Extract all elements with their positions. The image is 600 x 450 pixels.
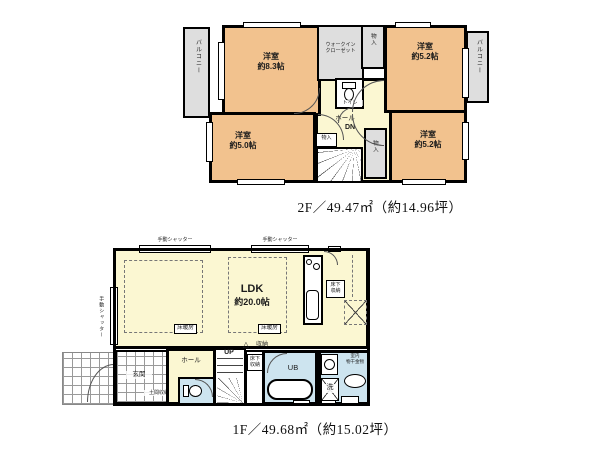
floor-2f-caption: 2F／49.47㎡（約14.96坪） — [280, 196, 480, 216]
floorplan-canvas: バルコニー バルコニー 洋室 約8.3帖 洋室 約5.0帖 洋室 約5.2帖 洋… — [0, 0, 600, 450]
bedroom-ne-name: 洋室 — [394, 42, 456, 52]
shutter-label-side: 手動シャッター — [98, 286, 104, 348]
window — [237, 179, 285, 185]
building-outline-1f — [113, 248, 370, 406]
balcony-left-label: バルコニー — [193, 39, 201, 74]
window — [218, 42, 225, 100]
closet-top-label: 物入 — [369, 33, 376, 46]
window — [395, 22, 431, 28]
wic-line2: クローゼット — [317, 48, 364, 54]
bedroom-sw-name: 洋室 — [210, 131, 276, 141]
bedroom-nw-size: 約8.3帖 — [238, 62, 304, 72]
bedroom-nw-label: 洋室 約8.3帖 — [238, 52, 304, 72]
closet-top: 物入 — [361, 25, 385, 69]
balcony-right: バルコニー — [466, 31, 489, 103]
bedroom-sw-size: 約5.0帖 — [210, 141, 276, 151]
shutter-label-top-right: 手動シャッター — [251, 237, 309, 243]
bedroom-se-name: 洋室 — [398, 130, 458, 140]
stairs-2f — [316, 147, 363, 183]
window — [206, 122, 213, 162]
bedroom-sw-label: 洋室 約5.0帖 — [210, 131, 276, 151]
floor-1f-caption: 1F／49.68㎡（約15.02坪） — [200, 418, 430, 438]
window — [402, 179, 446, 185]
window — [243, 22, 301, 28]
window — [462, 122, 469, 160]
bedroom-ne — [384, 25, 467, 113]
walk-in-closet-label: ウォークイン クローゼット — [317, 42, 364, 55]
bedroom-se-size: 約5.2帖 — [398, 140, 458, 150]
window — [462, 48, 469, 98]
shutter-label-top-left: 手動シャッター — [139, 237, 211, 243]
balcony-left: バルコニー — [183, 27, 210, 118]
bedroom-se-label: 洋室 約5.2帖 — [398, 130, 458, 150]
bedroom-ne-label: 洋室 約5.2帖 — [394, 42, 456, 62]
bedroom-nw-name: 洋室 — [238, 52, 304, 62]
bedroom-ne-size: 約5.2帖 — [394, 52, 456, 62]
balcony-right-label: バルコニー — [474, 39, 482, 74]
